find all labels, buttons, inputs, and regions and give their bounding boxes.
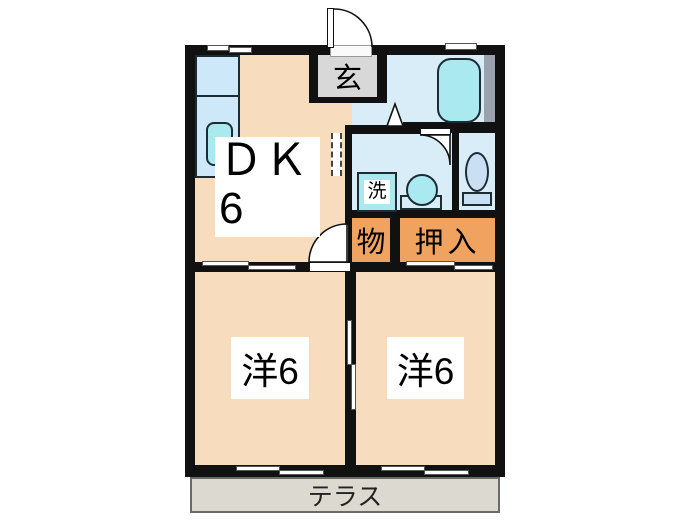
kitchen-counter-divider [197, 95, 238, 97]
wall-genkan-left [309, 45, 318, 102]
toilet-bowl [465, 152, 489, 192]
wall-left [185, 45, 195, 477]
bedroom-right-label-wrap: 洋6 [356, 343, 495, 393]
oshiire-sliding-door-pane-b [454, 265, 493, 270]
washing-machine: 洗 [357, 172, 397, 212]
wall-right [495, 45, 505, 477]
terrace: テラス [190, 477, 500, 513]
washbasin-bowl [406, 174, 438, 206]
terrace-window-right-pane-b [424, 470, 469, 475]
dk-door-threshold [310, 263, 350, 271]
dk-label-line2: 6 [219, 185, 320, 233]
wall-closet-divider [390, 218, 400, 262]
wall-washroom-top [345, 125, 420, 134]
terrace-window-left-pane-b [279, 470, 324, 475]
dk-bedroom-sliding-door-pane-b [248, 265, 296, 270]
oshiire-label: 押入 [400, 218, 495, 262]
bedroom-left-label: 洋6 [231, 337, 309, 399]
bathtub [437, 58, 481, 123]
bedroom-divider-sliding-pane-a [347, 320, 352, 365]
terrace-window-right-pane-a [381, 466, 425, 471]
genkan-label: 玄 [318, 55, 377, 97]
terrace-window-left-pane-a [236, 466, 280, 471]
floor-plan: テラス 洗 [0, 0, 700, 525]
dk-door-leaf [341, 224, 349, 262]
wall-washroom-toilet [452, 133, 459, 215]
toilet-tank [462, 192, 492, 206]
kitchen-window-pane-right [229, 47, 252, 53]
entrance-door-swing-arc [334, 9, 372, 47]
bathroom-window [445, 43, 477, 50]
storage-label: 物 [352, 218, 390, 262]
pipe-space [484, 55, 495, 122]
dk-label: ＤＫ 6 [215, 137, 320, 237]
wall-genkan-bottom [309, 97, 387, 103]
entrance-door-leaf [327, 8, 334, 48]
terrace-label: テラス [308, 477, 383, 513]
dk-bedroom-sliding-door-pane-a [202, 261, 249, 266]
dk-label-line1: ＤＫ [219, 137, 320, 185]
bedroom-left-label-wrap: 洋6 [195, 343, 345, 393]
washing-machine-label: 洗 [364, 180, 389, 204]
bedroom-right-label: 洋6 [387, 337, 465, 399]
wall-genkan-bathroom [377, 45, 387, 102]
washroom-door-leaf [420, 128, 451, 135]
kitchen-window-pane-left [207, 45, 229, 51]
dk-washroom-dashed-opening [331, 133, 342, 176]
